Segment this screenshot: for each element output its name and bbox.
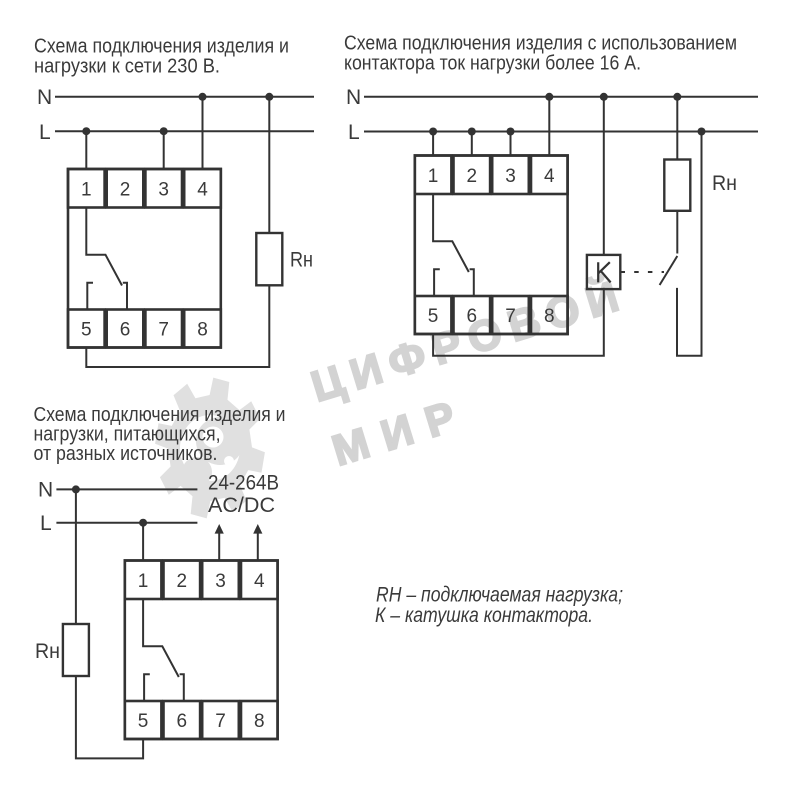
svg-text:Rн: Rн <box>35 640 60 663</box>
svg-text:6: 6 <box>467 306 478 327</box>
svg-text:L: L <box>40 512 52 535</box>
svg-text:N: N <box>37 86 52 109</box>
svg-text:6: 6 <box>120 319 131 340</box>
svg-text:8: 8 <box>254 711 265 732</box>
svg-text:2: 2 <box>467 166 478 187</box>
svg-text:24-264В: 24-264В <box>208 472 279 495</box>
svg-text:3: 3 <box>158 179 169 200</box>
svg-text:L: L <box>348 121 360 144</box>
svg-text:5: 5 <box>138 711 149 732</box>
svg-text:4: 4 <box>544 166 555 187</box>
svg-text:от разных источников.: от разных источников. <box>34 443 218 465</box>
svg-text:N: N <box>38 479 53 502</box>
svg-text:2: 2 <box>177 571 188 592</box>
svg-text:6: 6 <box>177 711 188 732</box>
svg-text:N: N <box>346 86 361 109</box>
svg-text:AC/DC: AC/DC <box>208 494 275 517</box>
svg-text:К – катушка контактора.: К – катушка контактора. <box>375 604 593 627</box>
svg-text:8: 8 <box>544 306 555 327</box>
svg-text:2: 2 <box>120 179 131 200</box>
svg-text:контактора ток нагрузки более: контактора ток нагрузки более 16 А. <box>344 52 641 74</box>
svg-text:5: 5 <box>81 319 92 340</box>
svg-text:8: 8 <box>197 319 208 340</box>
svg-text:1: 1 <box>428 166 439 187</box>
svg-text:1: 1 <box>138 571 149 592</box>
svg-text:5: 5 <box>428 306 439 327</box>
svg-text:4: 4 <box>197 179 208 200</box>
svg-text:7: 7 <box>505 306 516 327</box>
svg-text:нагрузки к сети 230 В.: нагрузки к сети 230 В. <box>34 56 220 78</box>
svg-text:1: 1 <box>81 179 92 200</box>
svg-text:Rн: Rн <box>290 249 313 272</box>
svg-text:Схема подключения изделия с ис: Схема подключения изделия с использовани… <box>344 33 737 55</box>
svg-text:L: L <box>39 121 51 144</box>
svg-text:4: 4 <box>254 571 265 592</box>
svg-text:Rн: Rн <box>712 172 737 195</box>
svg-text:7: 7 <box>158 319 169 340</box>
svg-text:3: 3 <box>505 166 516 187</box>
svg-text:3: 3 <box>215 571 226 592</box>
svg-text:7: 7 <box>215 711 226 732</box>
svg-text:Схема подключения изделия и: Схема подключения изделия и <box>34 35 289 57</box>
